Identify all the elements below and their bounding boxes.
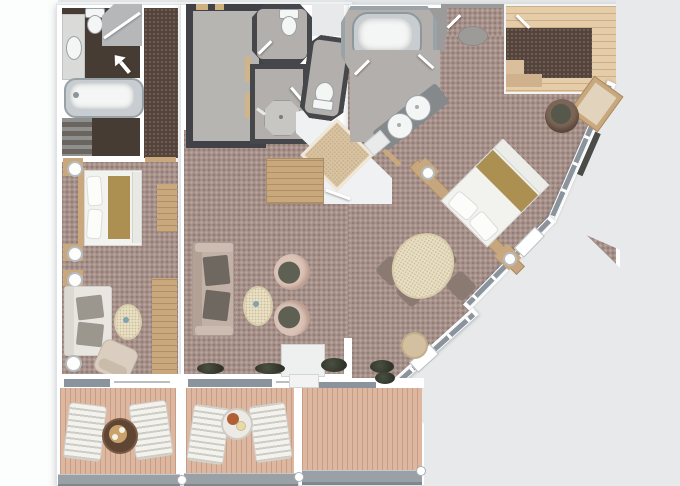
- tub-chair: [271, 251, 314, 294]
- guest-bathtub-basin: [70, 83, 134, 109]
- exterior-bottom-right: [424, 378, 680, 486]
- niche-wall-top: [441, 4, 509, 8]
- master-bathtub-basin: [358, 18, 412, 51]
- window-plant: [197, 363, 224, 374]
- wc-room: [252, 4, 312, 64]
- railing-post: [294, 472, 304, 482]
- guest-dresser: [157, 184, 177, 232]
- master-lamp: [421, 166, 435, 180]
- exterior-notch: [312, 4, 344, 36]
- guest-table-decor: [123, 317, 129, 323]
- sink-drain: [397, 123, 401, 127]
- guest-pillow: [86, 209, 103, 240]
- guest-toilet-bowl: [87, 15, 103, 34]
- exterior-top-right: [616, 0, 680, 84]
- living-table-decor: [253, 301, 259, 307]
- closet-top-shelf: [196, 4, 208, 10]
- master-veranda-railing: [302, 470, 422, 485]
- page-margin: [0, 0, 58, 486]
- veranda-divider: [294, 380, 302, 482]
- pouf: [401, 332, 428, 359]
- guest-media-cabinet: [152, 278, 177, 376]
- living-sofa: [192, 242, 234, 336]
- stage-top-trim: [56, 2, 352, 4]
- tray-cup: [119, 427, 125, 433]
- guest-bed: [84, 170, 142, 246]
- master-lamp: [503, 252, 517, 266]
- window-plant: [375, 372, 395, 384]
- window-plant: [255, 363, 285, 374]
- railing-post: [177, 475, 187, 485]
- guest-veranda-door-track: [114, 381, 170, 383]
- guest-sink: [66, 36, 82, 60]
- living-veranda-railing: [184, 473, 298, 486]
- master-veranda-deck: [302, 388, 422, 474]
- guest-bed-fold: [132, 172, 141, 243]
- living-sofa-cushion: [202, 290, 230, 322]
- table-food-bowl: [236, 421, 246, 431]
- tray-cup: [112, 434, 118, 440]
- guest-lounger: [63, 402, 108, 462]
- writing-desk: [281, 344, 325, 377]
- guest-sofa-lamp: [65, 355, 82, 372]
- guest-bed-runner: [108, 176, 130, 239]
- guest-window-glass: [64, 378, 110, 388]
- writing-desk-chair: [289, 374, 319, 388]
- guest-lamp-bottom: [67, 246, 83, 262]
- guest-tub-faucet: [73, 92, 79, 98]
- living-window-glass: [188, 378, 272, 388]
- wardrobe-step-unit: [506, 74, 542, 87]
- living-sofa-cushion: [203, 255, 231, 286]
- guest-closet-shelves: [62, 118, 92, 156]
- guest-lamp-top: [67, 161, 83, 177]
- guest-veranda-railing: [58, 474, 180, 486]
- niche-oval-rug: [458, 26, 488, 46]
- veranda-divider: [176, 382, 184, 482]
- sink-drain: [415, 105, 419, 109]
- living-lounger: [248, 402, 293, 464]
- window-plant: [370, 360, 394, 373]
- shower-drain: [279, 115, 283, 119]
- guest-sofa-cushion: [76, 295, 105, 321]
- guest-sofa-cushion: [76, 322, 104, 348]
- railing-post: [416, 466, 426, 476]
- closet-top-shelf: [215, 4, 224, 10]
- guest-hallway-carpet: [144, 8, 178, 158]
- floor-plan: [0, 0, 680, 486]
- window-plant: [321, 358, 347, 372]
- wc-toilet-bowl: [281, 16, 297, 36]
- foyer-sideboard: [266, 158, 324, 204]
- guest-pillow: [86, 176, 103, 207]
